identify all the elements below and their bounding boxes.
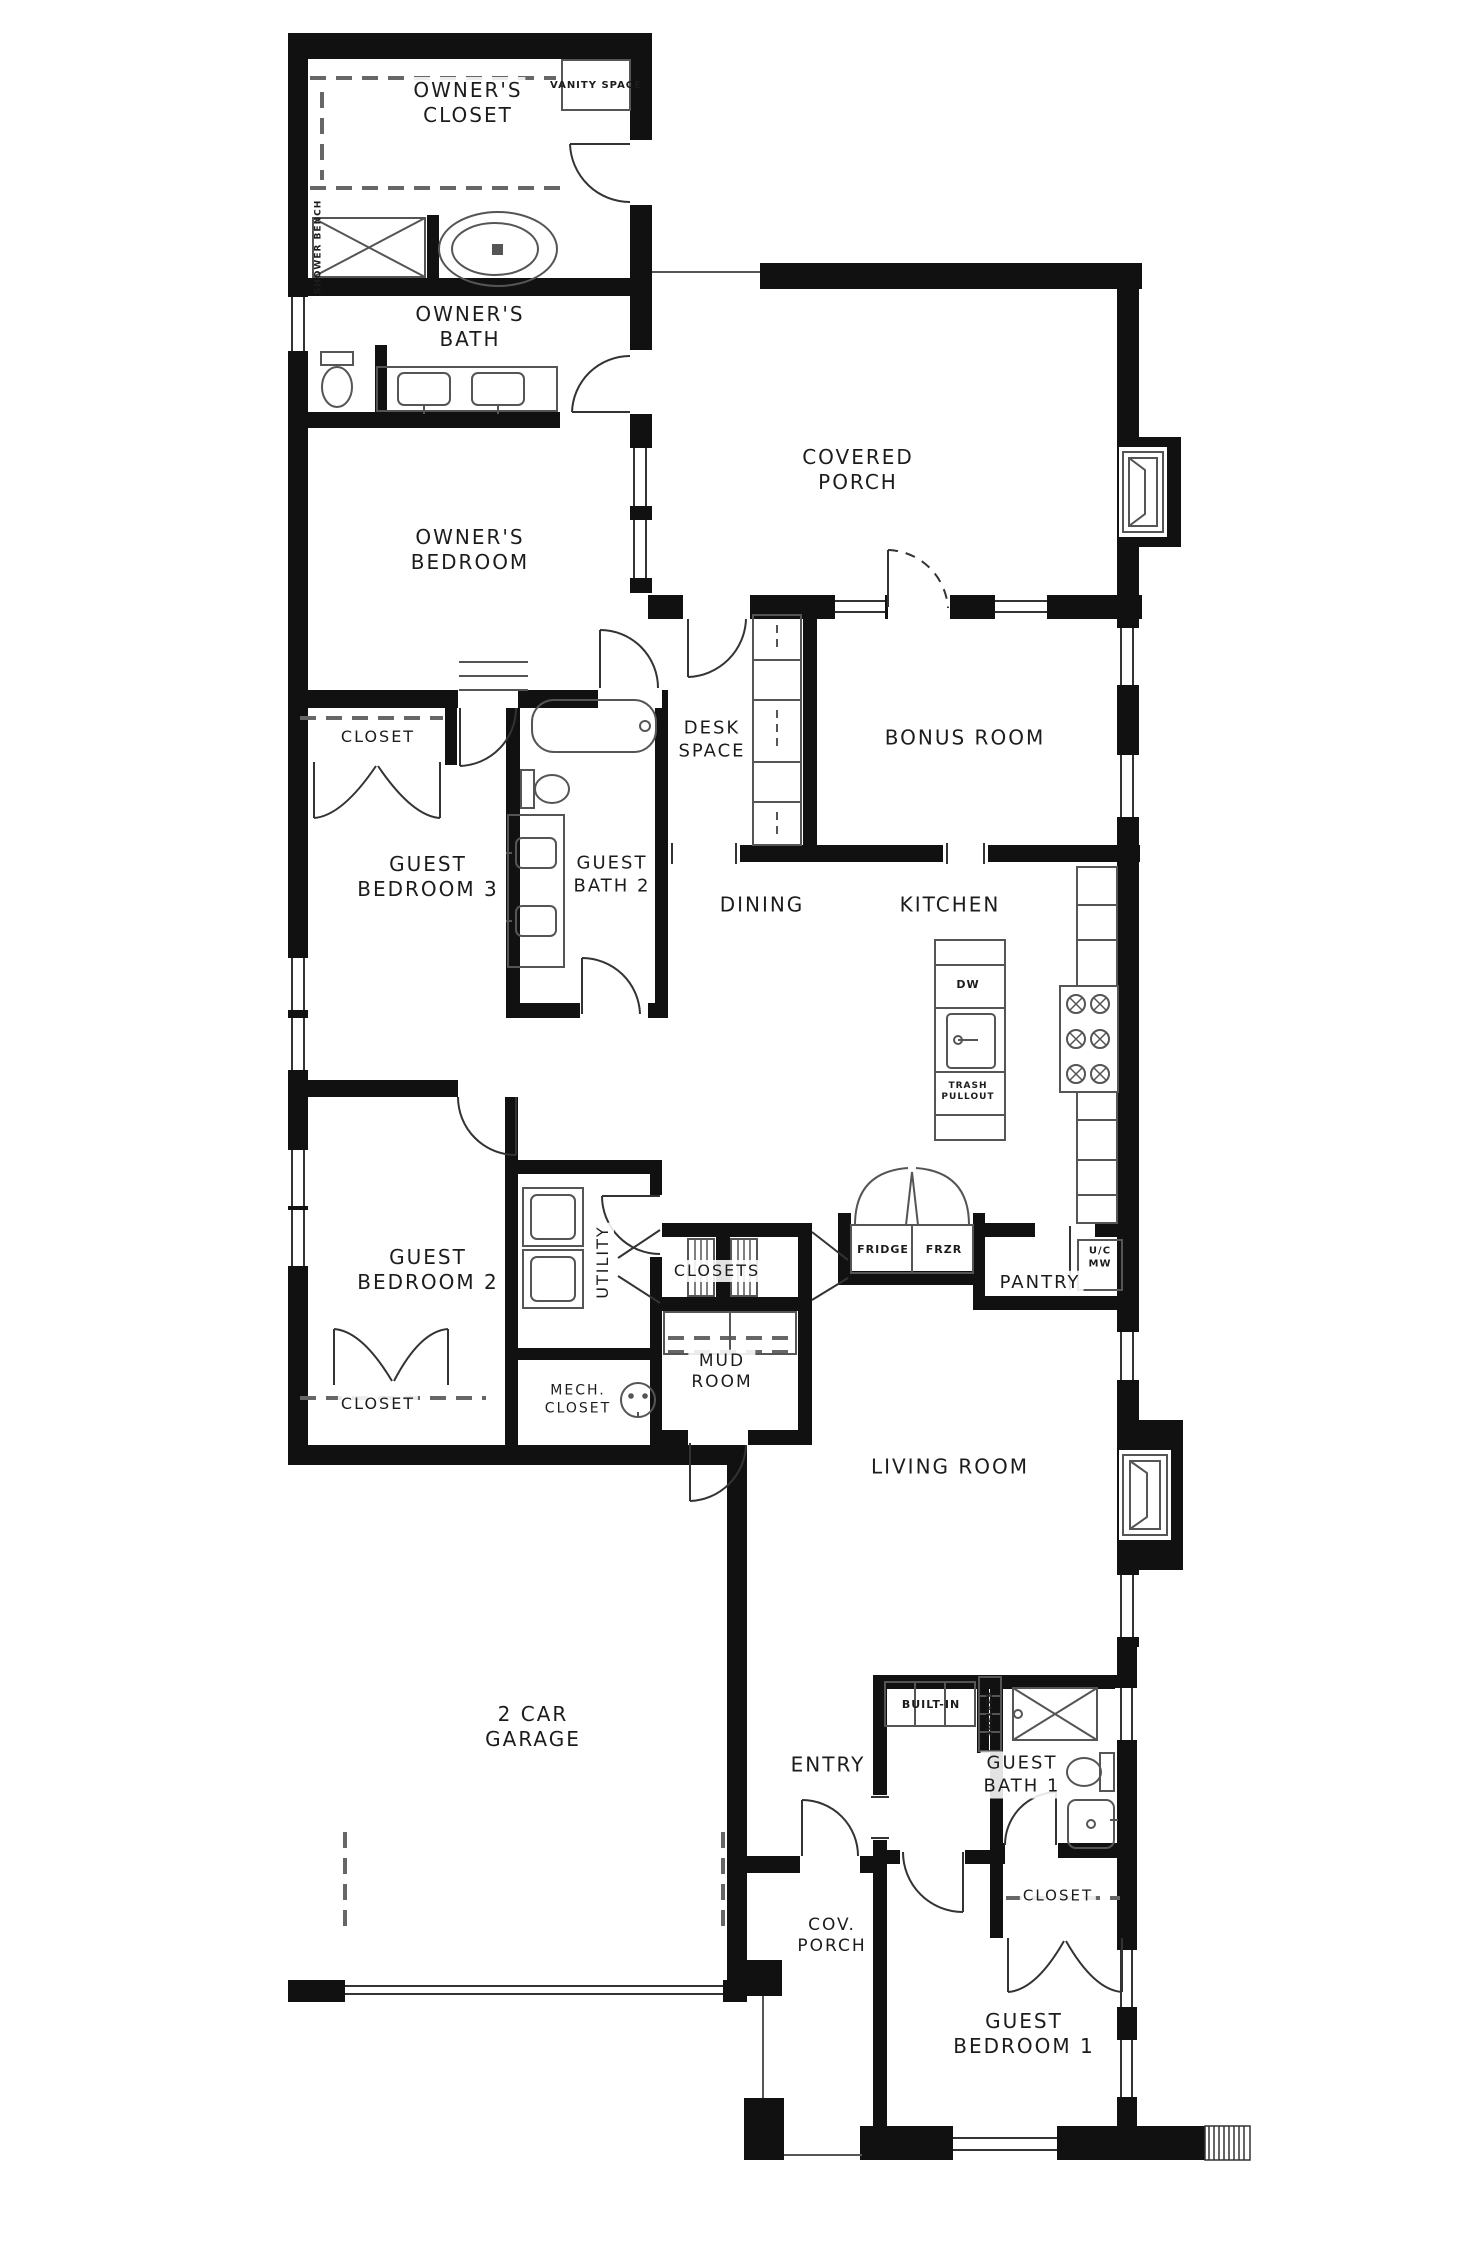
room-label-pantry: PANTRY	[997, 1271, 1084, 1296]
range	[1060, 986, 1118, 1092]
label-closet-bedroom3: CLOSET	[338, 726, 418, 748]
washer-dryer	[523, 1188, 583, 1308]
room-label-covered-porch: COVERED PORCH	[799, 444, 917, 496]
label-closet-bedroom1: CLOSET	[1020, 1886, 1096, 1907]
room-label-bonus-room: BONUS ROOM	[882, 725, 1048, 752]
shower-owner	[313, 218, 425, 277]
room-label-guest-bath2: GUEST BATH 2	[571, 852, 654, 899]
floorplan-drawing	[0, 0, 1463, 2250]
toilet-bath1	[1067, 1753, 1114, 1791]
room-label-utility: UTILITY	[592, 1222, 614, 1301]
stoop-hatch	[1205, 2126, 1250, 2160]
label-uc-mw: U/C MW	[1086, 1245, 1115, 1272]
label-shelves: SHELVES	[984, 1688, 996, 1740]
label-dw: DW	[953, 977, 982, 993]
room-label-mud-room: MUD ROOM	[688, 1350, 755, 1395]
room-label-owners-bath: OWNER'S BATH	[412, 301, 527, 353]
shower-bath1	[1013, 1688, 1097, 1740]
label-fridge: FRIDGE	[854, 1242, 912, 1258]
floor-plan: OWNER'S CLOSET VANITY SPACE SHOWER BENCH…	[0, 0, 1463, 2250]
bathtub-owner	[439, 212, 557, 286]
room-label-guest-bath1: GUEST BATH 1	[981, 1752, 1064, 1799]
room-label-kitchen: KITCHEN	[897, 892, 1004, 919]
room-label-cov-porch: COV. PORCH	[794, 1914, 869, 1959]
label-built-in: BUILT-IN	[899, 1697, 963, 1713]
vanity-owner	[377, 367, 557, 414]
label-shower-bench: SHOWER BENCH	[312, 197, 325, 297]
room-label-garage: 2 CAR GARAGE	[482, 1701, 584, 1753]
water-heater	[621, 1383, 655, 1417]
room-label-closets: CLOSETS	[671, 1260, 763, 1282]
room-label-owners-bedroom: OWNER'S BEDROOM	[408, 524, 532, 576]
room-label-mech-closet: MECH. CLOSET	[542, 1382, 614, 1419]
room-label-guest-bedroom3: GUEST BEDROOM 3	[354, 851, 501, 903]
linen-shelves	[459, 662, 528, 690]
kitchen-island	[935, 940, 1005, 1140]
closet-rods	[300, 78, 1120, 1926]
label-closet-bedroom2: CLOSET	[338, 1393, 418, 1415]
fireplace-living	[1123, 1455, 1167, 1535]
mud-bench	[664, 1312, 796, 1354]
label-frzr: FRZR	[923, 1242, 965, 1258]
room-label-desk-space: DESK SPACE	[675, 717, 748, 764]
toilet-bath2	[521, 770, 569, 808]
label-trash-pullout: TRASH PULLOUT	[938, 1080, 997, 1105]
fireplace-porch	[1123, 452, 1163, 532]
desk-cabinets	[753, 615, 801, 845]
room-label-entry: ENTRY	[788, 1752, 869, 1779]
label-vanity-space: VANITY SPACE	[547, 79, 645, 94]
room-label-guest-bedroom2: GUEST BEDROOM 2	[354, 1244, 501, 1296]
sink-bath1	[1068, 1800, 1118, 1848]
room-label-guest-bedroom1: GUEST BEDROOM 1	[950, 2008, 1097, 2060]
room-label-owners-closet: OWNER'S CLOSET	[410, 77, 525, 129]
room-label-living-room: LIVING ROOM	[868, 1454, 1032, 1481]
room-label-dining: DINING	[717, 892, 808, 919]
toilet-owner	[321, 352, 353, 407]
